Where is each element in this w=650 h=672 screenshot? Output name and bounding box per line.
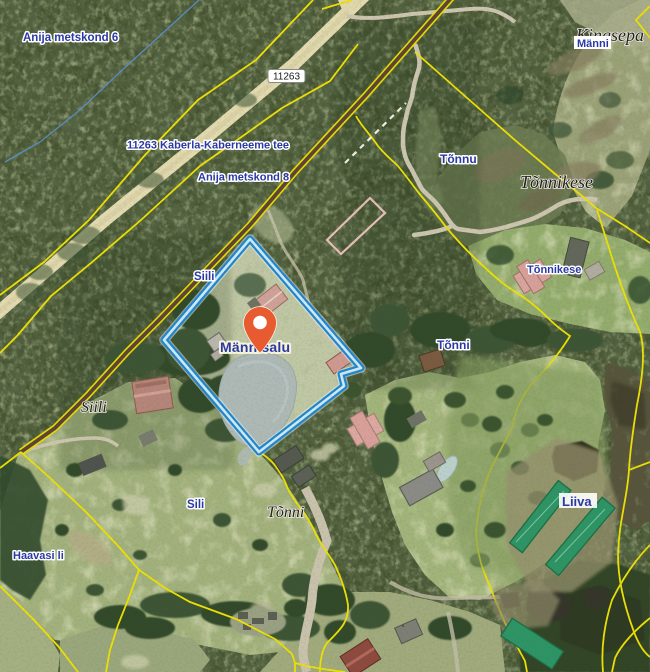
svg-text:Haavasi li: Haavasi li [13, 550, 64, 562]
svg-text:Tõnni: Tõnni [437, 338, 470, 352]
svg-text:Siili: Siili [194, 271, 214, 283]
svg-text:Anija metskond 6: Anija metskond 6 [23, 32, 118, 44]
svg-text:Siili: Siili [81, 399, 107, 416]
svg-text:11263: 11263 [273, 72, 301, 83]
svg-text:Tõnnikese: Tõnnikese [520, 172, 593, 192]
svg-text:Liiva: Liiva [562, 494, 592, 509]
svg-text:11263 Kaberla-Kaberneeme tee: 11263 Kaberla-Kaberneeme tee [127, 140, 289, 152]
svg-text:Männi: Männi [577, 38, 609, 50]
svg-text:Sili: Sili [187, 499, 204, 511]
svg-text:Tõnnikese: Tõnnikese [527, 264, 581, 276]
svg-text:Tõnnu: Tõnnu [440, 152, 477, 166]
svg-text:Anija metskond 8: Anija metskond 8 [198, 172, 289, 184]
svg-text:Tõnni: Tõnni [267, 504, 304, 521]
